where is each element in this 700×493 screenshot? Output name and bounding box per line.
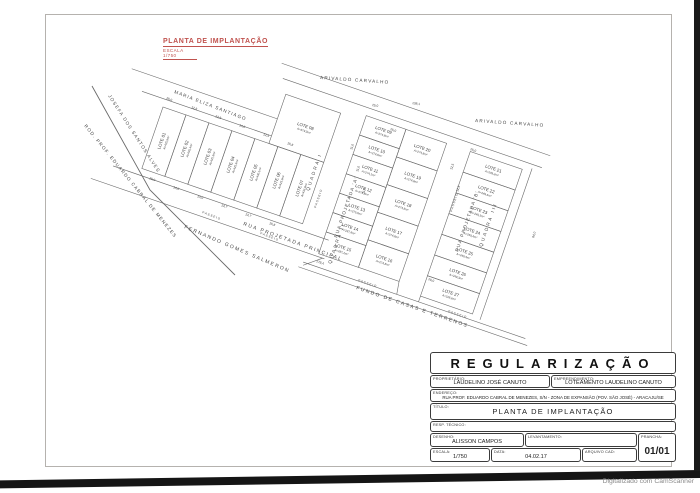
field-arquivo-cad: ARQUIVO CAD: [582,448,637,462]
sidewalk-label: PASSEIO [449,192,459,212]
dimension-label: 11,0 [349,143,355,150]
field-value: 01/01 [639,446,675,457]
street-edge-line [91,178,325,258]
field-endereco: ENDEREÇO: RUA PROF. EDUARDO CABRAL DE ME… [430,389,676,402]
lot-23: LOTE 23A=249,3m² [449,193,508,232]
lot-09: LOTE 09A=274,8m² [360,116,406,149]
lot-03: LOTE 03A=425,9m² [188,123,232,192]
field-label: PRANCHA: [641,435,662,439]
lot-16: LOTE 16A=274,8m² [358,240,408,282]
field-value: LOTEAMENTO LAUDELINO CANUTO [552,380,675,386]
lot-08: LOTE 08A=379,0m² [269,94,341,162]
field-escala: ESCALA: 1/750 [430,448,490,462]
field-prancha: PRANCHA: 01/01 [638,433,676,462]
dimension-label: 14,0 [173,185,180,191]
lot-20: LOTE 20A=274,8m² [396,129,446,171]
lot-22: LOTE 22A=249,4m² [456,172,515,211]
title-block: REGULARIZAÇÃO PROPRIETÁRIO: LAUDELINO JO… [430,352,676,462]
lot-26: LOTE 26A=249,3m² [427,255,486,294]
sidewalk-label: PASSEIO [313,188,323,208]
lot-15: LOTE 15A=287,2m² [319,232,366,267]
field-proprietario: PROPRIETÁRIO: LAUDELINO JOSÉ CANUTO [430,375,550,388]
field-value: 04.02.17 [492,454,580,460]
lot-05: LOTE 05A=430,1m² [234,139,278,208]
boundary-line [303,262,525,339]
field-levantamento: LEVANTAMENTO: [525,433,637,447]
dimension-label: 84,0 [531,231,537,238]
lot-18: LOTE 18A=274,8m² [377,185,427,227]
street-edge-line [395,281,401,294]
dimension-label: 13,7 [245,212,252,218]
sidewalk-label: PASSEIO [202,210,222,221]
street-label-arivaldo-2: ARIVALDO CARVALHO [475,118,545,128]
dimension-label: 25,0 [372,103,379,108]
plan-rotated-group: LOTE 01A=425,9m²LOTE 02A=430,4m²LOTE 03A… [86,17,588,346]
field-titulo: TÍTULO: PLANTA DE IMPLANTAÇÃO [430,403,676,420]
scan-edge-right-strip [694,0,700,471]
lot-19: LOTE 19A=274,8m² [387,157,437,199]
field-resp-tecnico: RESP. TÉCNICO: [430,421,676,432]
lot-10: LOTE 10A=274,8m² [353,135,399,168]
lot-01: LOTE 01A=425,9m² [142,107,186,176]
scanned-site-plan-page: PLANTA DE IMPLANTAÇÃO ESCALA 1/750 LOTE … [0,0,700,493]
lot-04: LOTE 04A=425,9m² [211,131,255,200]
lot-02: LOTE 02A=430,4m² [165,115,209,184]
dimension-label: 12,5 [455,185,461,192]
lot-17: LOTE 17A=274,8m² [368,212,418,254]
dimension-label: 15,0 [149,176,156,182]
dimension-label: 12,5 [215,114,222,120]
dimension-label: 14,0 [197,194,204,200]
field-desenho: DESENHO: ALISSON CAMPOS [430,433,524,447]
street-label-maria-eliza: MARIA ELIZA SANTIAGO [174,89,248,121]
highway-line [92,86,235,275]
dimension-label: 13,7 [221,203,228,209]
field-value: 1/750 [431,454,489,460]
dimension-label: 15,8 [269,221,276,227]
dimension-label: 178,4 [316,259,325,266]
lot-14: LOTE 14A=287,8m² [326,213,372,246]
lot-06: LOTE 06A=425,9m² [257,147,301,216]
field-empreendimento: EMPREENDIMENTO: LOTEAMENTO LAUDELINO CAN… [551,375,676,388]
field-value: PLANTA DE IMPLANTAÇÃO [431,407,675,416]
field-label: ARQUIVO CAD: [585,450,615,454]
dimension-label: 25,0 [470,147,477,153]
field-value: LAUDELINO JOSÉ CANUTO [431,380,549,386]
field-data: DATA: 04.02.17 [491,448,581,462]
field-label: LEVANTAMENTO: [528,435,562,439]
dimension-label: 20,0 [428,277,435,283]
camscanner-watermark: Digitalizado com CamScanner [603,478,694,485]
street-edge-line [132,69,278,119]
field-value: ALISSON CAMPOS [431,439,523,445]
dimension-label: 138,1 [412,101,421,106]
dimension-label: 12,5 [449,163,455,170]
field-label: RESP. TÉCNICO: [433,423,466,427]
dimension-label: 11,0 [355,165,361,172]
dimension-label: 12,5 [263,132,270,138]
dimension-label: 14,0 [239,123,246,129]
street-label-arivaldo-1: ARIVALDO CARVALHO [320,75,390,85]
field-value: RUA PROF. EDUARDO CABRAL DE MENEZES, S/N… [431,395,675,400]
title-block-main-title: REGULARIZAÇÃO [430,352,676,374]
dimension-label: 15,8 [287,141,294,147]
lot-21: LOTE 21A=249,3m² [463,151,522,190]
street-edge-line [419,296,421,302]
